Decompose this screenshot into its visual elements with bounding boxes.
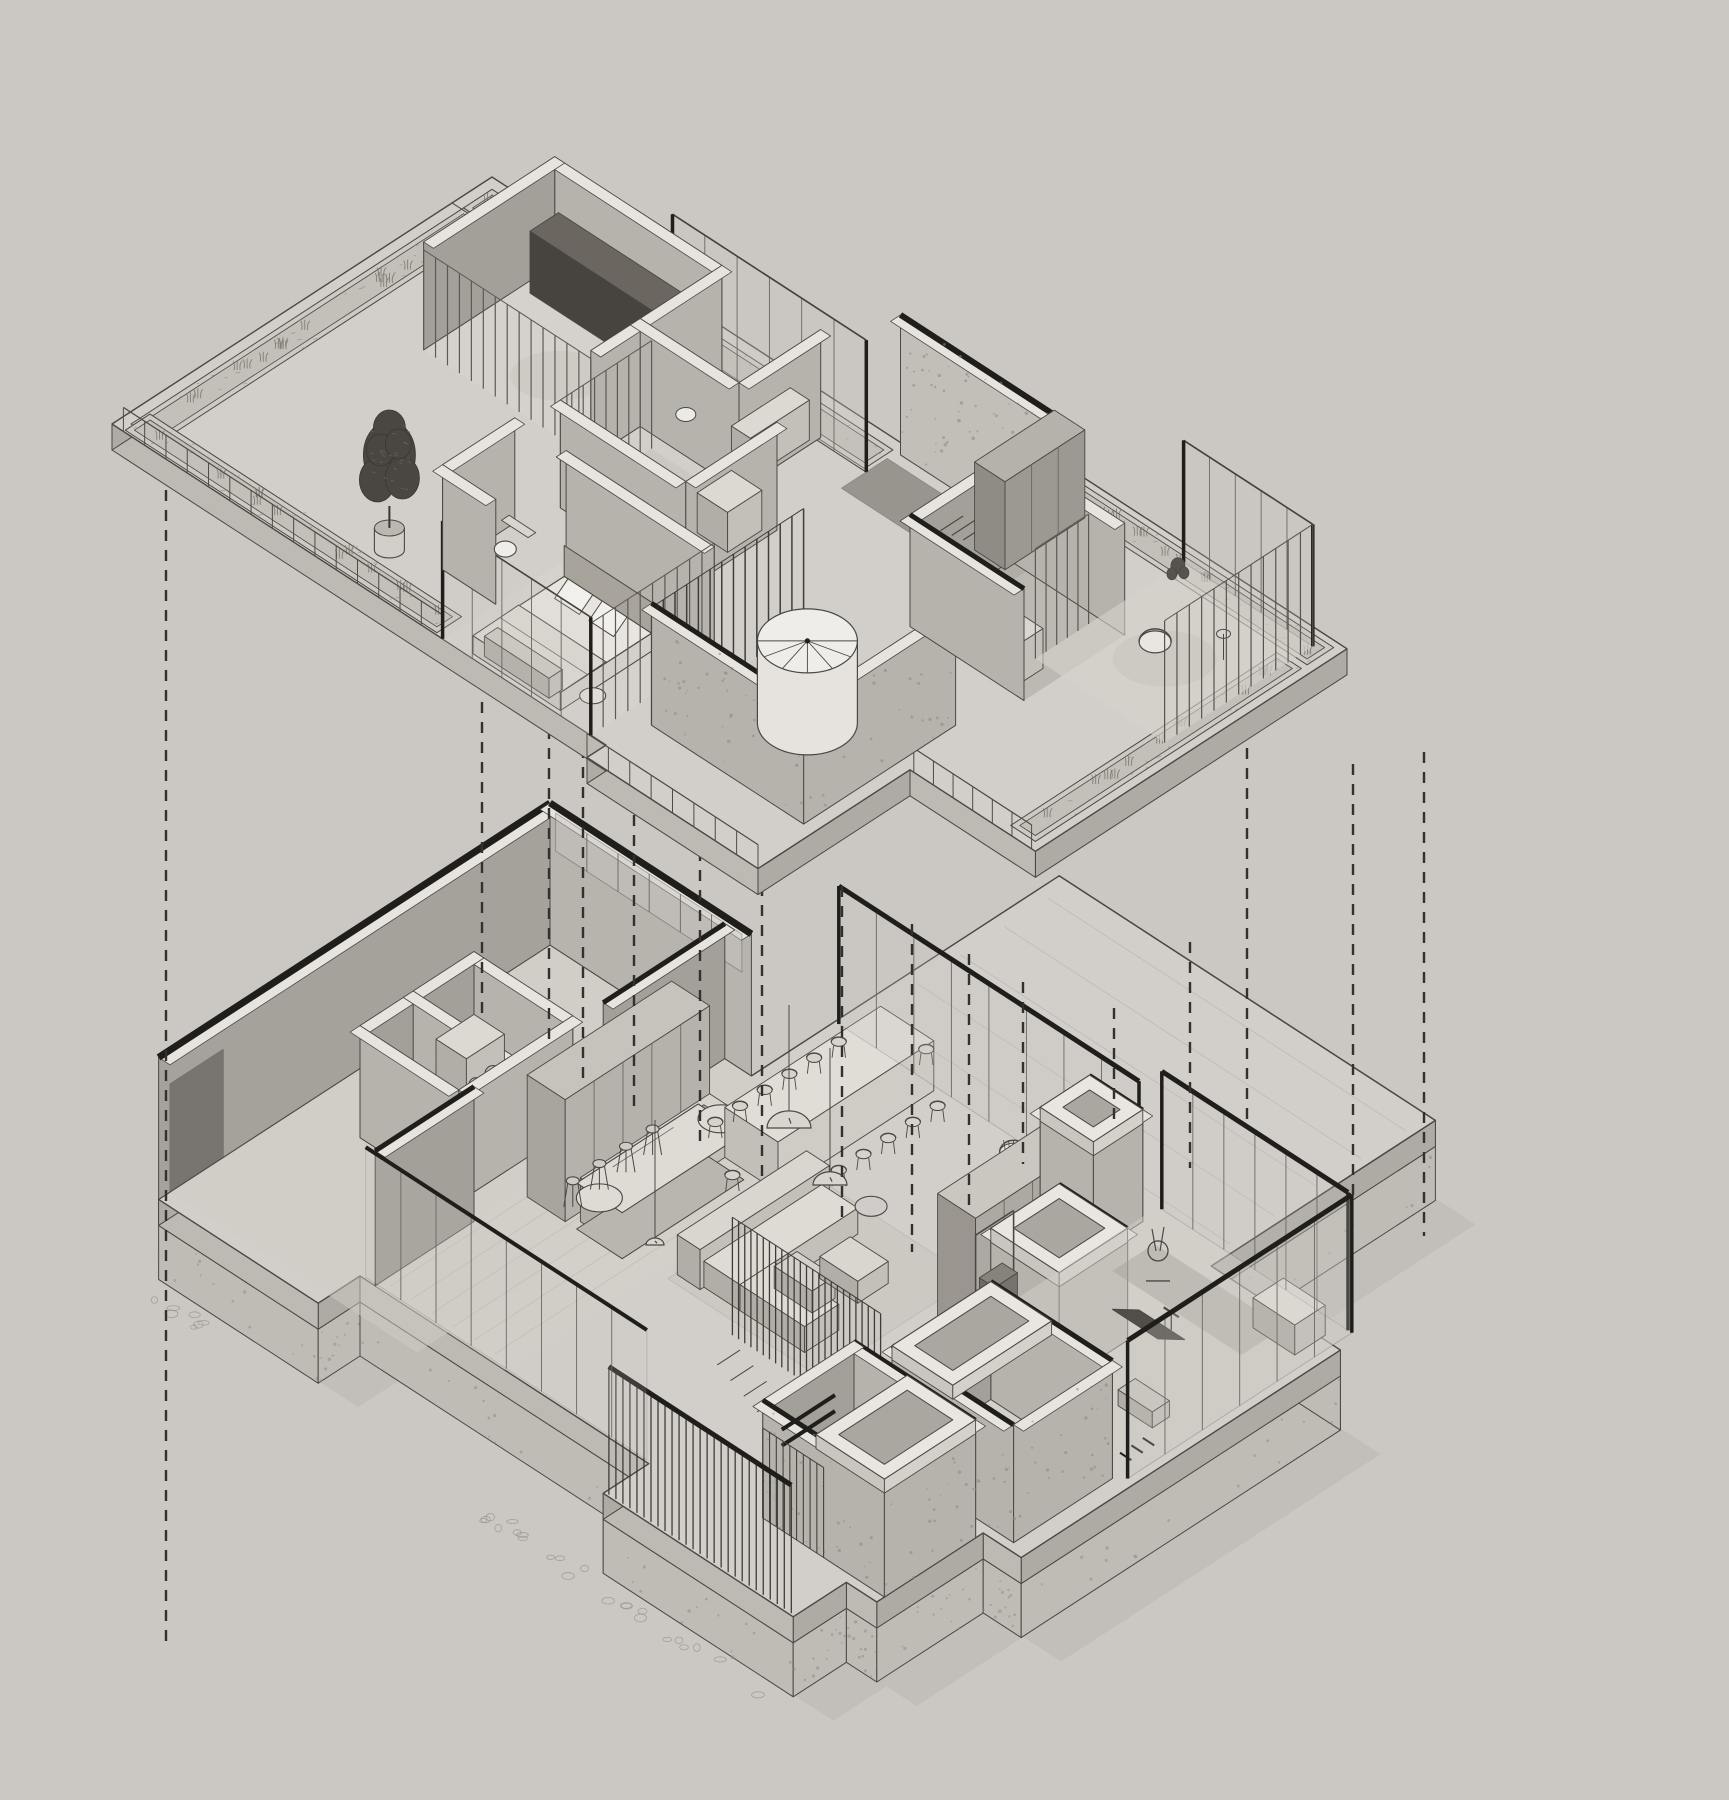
drawing-canvas [0, 0, 1729, 1800]
armchair [1139, 631, 1171, 653]
spiral-staircase [757, 609, 857, 755]
exploded-axonometric-drawing [0, 0, 1729, 1800]
